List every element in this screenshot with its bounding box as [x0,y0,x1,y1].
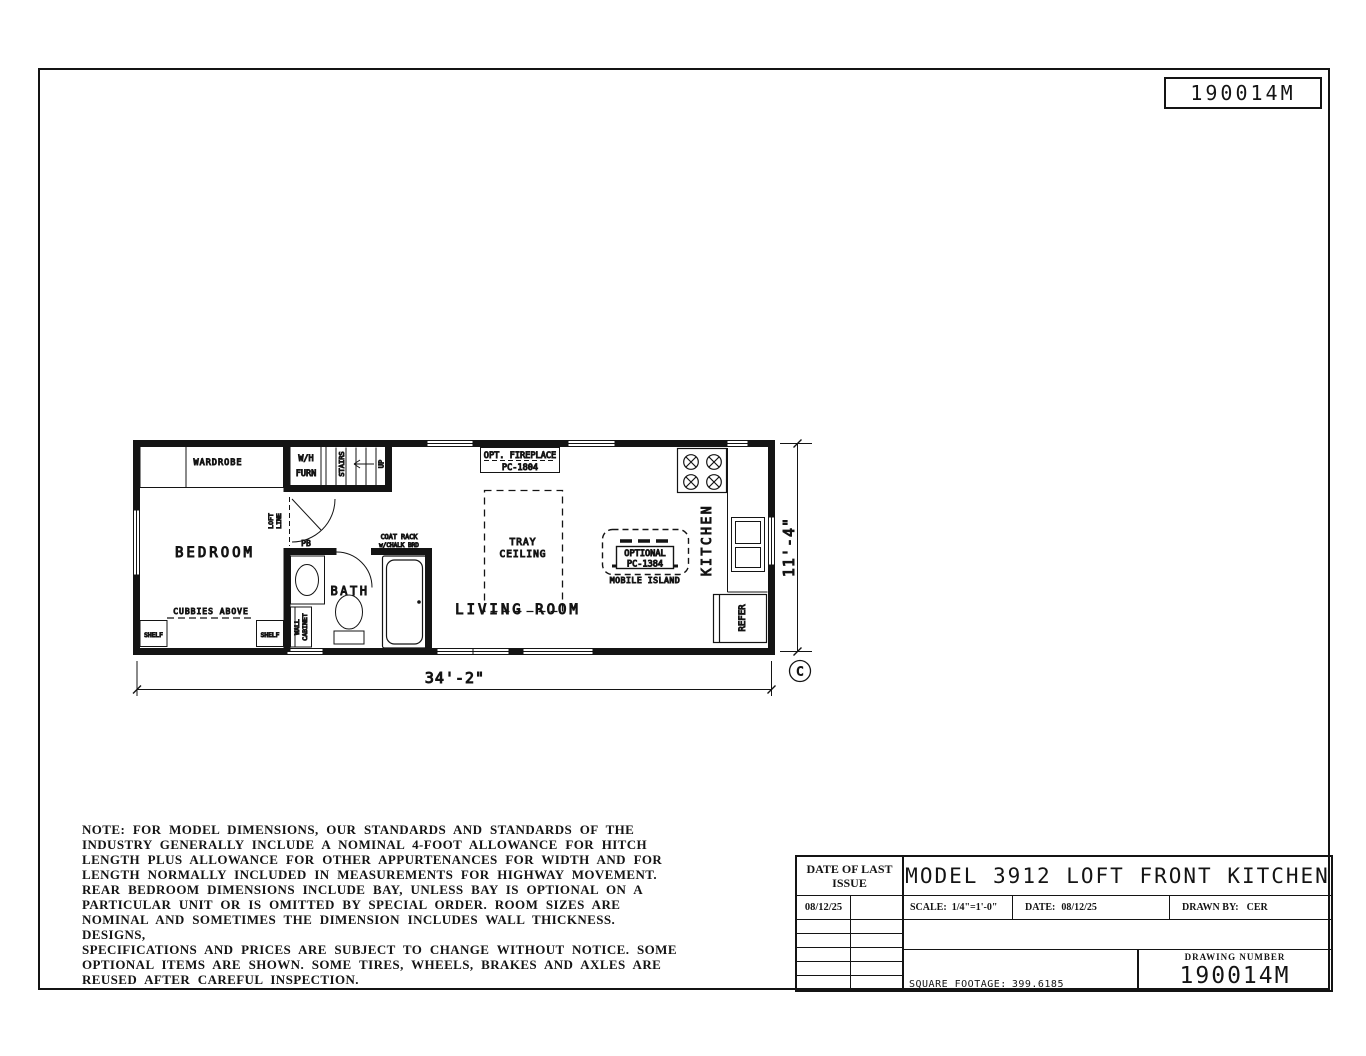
stairs-label: STAIRS [338,451,346,476]
refer-label: REFER [738,604,748,632]
scale-label: SCALE: [910,902,947,913]
date-of-last-issue-header: DATE OF LAST ISSUE [797,857,902,895]
width-dimension-label: 34'-2" [425,669,485,687]
tb-vline [1169,895,1170,919]
shelf-right-label: SHELF [261,632,280,639]
square-footage-value: 399.6185 [1012,979,1064,990]
living-room-label: LIVING ROOM [455,602,581,618]
tray-label-1: TRAY [510,537,537,548]
island-label-1: OPTIONAL [624,549,665,559]
drawing-number: 190014M [1139,963,1331,989]
bedroom-label: BEDROOM [175,545,255,561]
square-footage-cell: SQUARE FOOTAGE: 399.6185 [909,950,1137,998]
island-label-2: PC-1384 [627,560,663,570]
height-dimension-label: 11'-4" [780,517,798,577]
pb-label: PB [301,539,311,548]
drawn-by-cell: DRAWN BY: CER [1182,896,1331,919]
tray-label-2: CEILING [499,549,546,560]
date-label: DATE: [1025,902,1055,913]
wh-furn-label-1: W/H [298,454,313,464]
title-block: DATE OF LAST ISSUE MODEL 3912 LOFT FRONT… [795,855,1333,992]
kitchen-label: KITCHEN [700,504,715,576]
tb-vline [1012,895,1013,919]
tb-hline [797,919,1331,920]
svg-text:LINE: LINE [275,513,283,529]
disclaimer-note: NOTE: FOR MODEL DIMENSIONS, OUR STANDARD… [82,822,682,987]
fireplace-label-1: OPT. FIREPLACE [484,451,556,461]
scale-cell: SCALE: 1/4"=1'-0" [910,896,1012,919]
fireplace-label-2: PC-1804 [502,463,538,473]
loft-line-label: LOFT LINE [267,513,283,529]
drawing-number-cell: DRAWING NUMBER 190014M [1139,949,1331,990]
drawing-sheet: 190014M [0,0,1366,1056]
revision-letter: C [796,665,803,679]
drawn-by-value: CER [1247,902,1268,913]
cubbies-label: CUBBIES ABOVE [173,607,249,616]
scale-value: 1/4"=1'-0" [952,902,998,913]
drawing-number-label: DRAWING NUMBER [1139,952,1331,962]
bath-label: BATH [331,584,370,598]
square-footage-label: SQUARE FOOTAGE: [909,979,1007,990]
model-title: MODEL 3912 LOFT FRONT KITCHEN [904,857,1331,895]
issue-date: 08/12/25 [797,896,850,919]
island-caption: MOBILE ISLAND [610,575,681,585]
svg-text:WALL: WALL [293,619,301,635]
date-value: 08/12/25 [1061,902,1097,913]
range-cooktop [678,449,727,493]
coat-rack-label-2: w/CHALK BRD [379,542,419,549]
stairs-up-label: UP [378,460,386,468]
date-cell: DATE: 08/12/25 [1025,896,1169,919]
drawn-by-label: DRAWN BY: [1182,902,1239,913]
svg-text:CABINET: CABINET [301,613,309,640]
tb-vline [850,895,851,990]
wardrobe-label: WARDROBE [194,458,243,468]
svg-text:LOFT: LOFT [267,513,275,529]
wh-furn-label-2: FURN [296,469,316,479]
coat-rack-label-1: COAT RACK [381,533,419,541]
shelf-left-label: SHELF [144,632,163,639]
